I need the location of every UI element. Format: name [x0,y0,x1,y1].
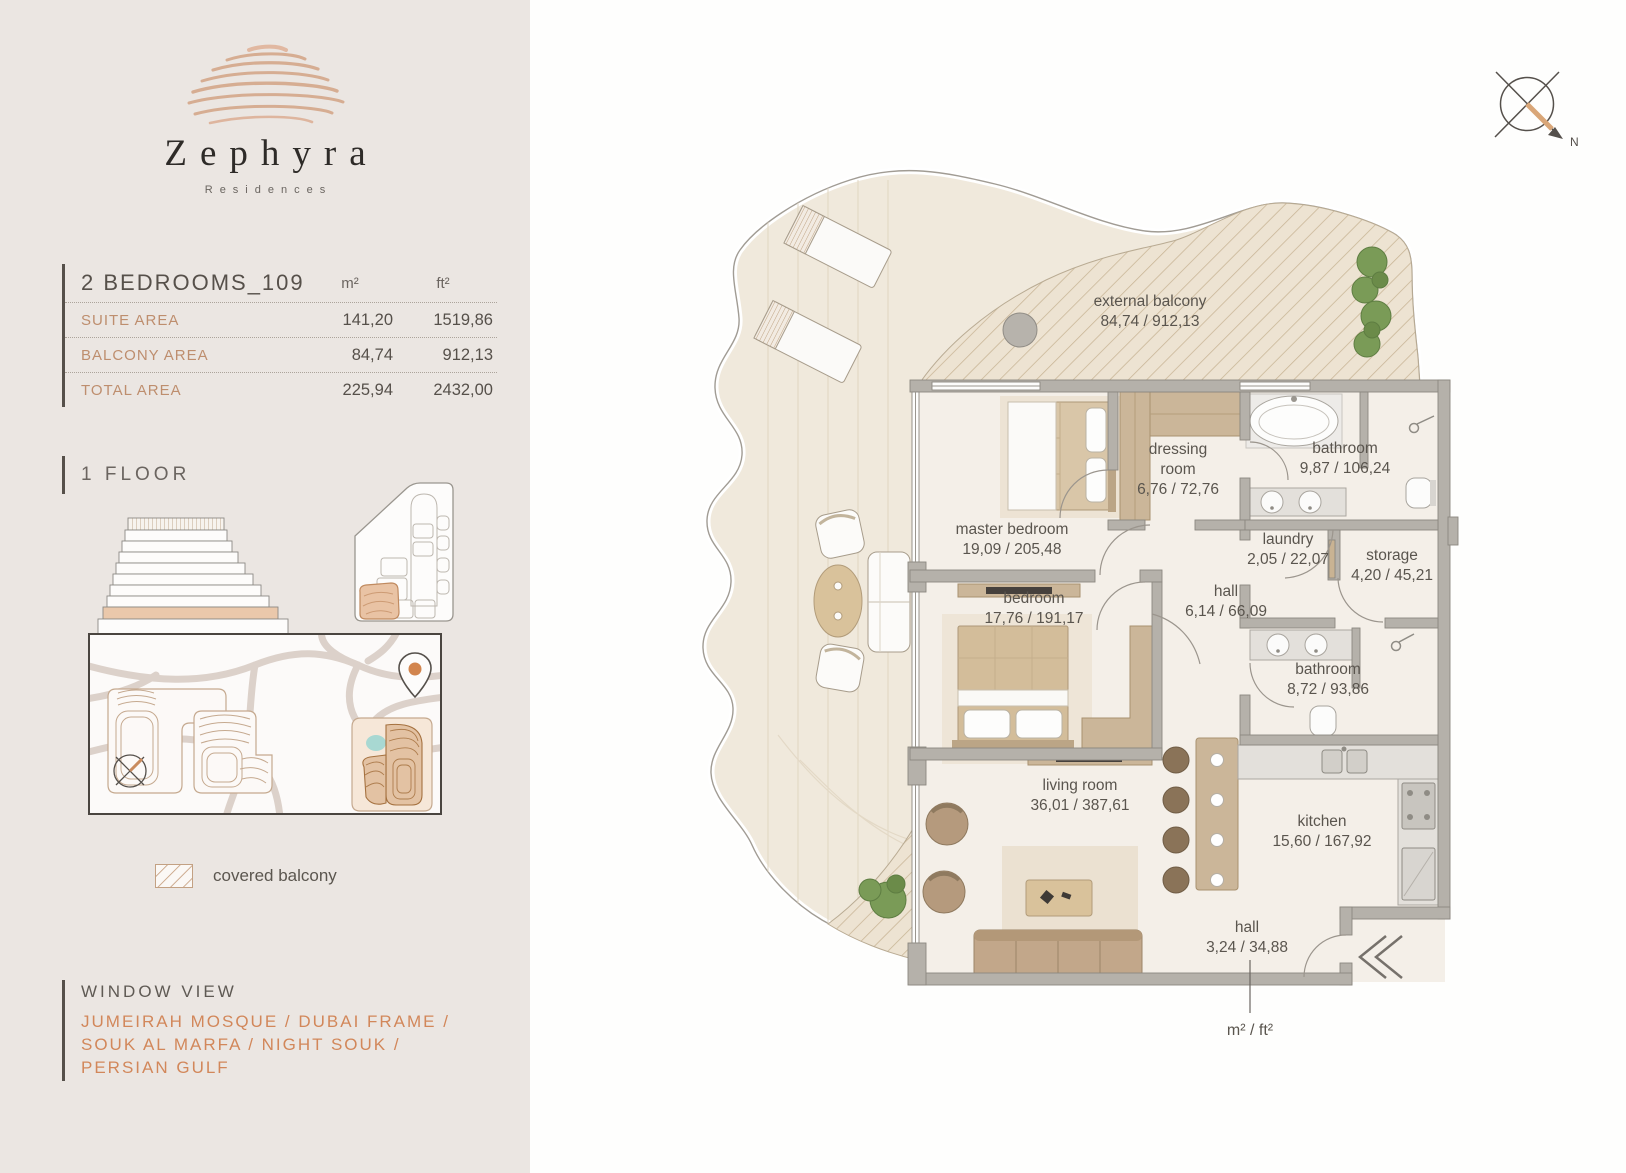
floorplan-brochure-page: Zephyra Residences 2 BEDROOMS_109 m² ft²… [0,0,1626,1173]
unit-title: 2 BEDROOMS_109 [81,270,307,296]
map-building-center [194,711,272,793]
room-label-external-balcony: external balcony84,74 / 912,13 [1094,292,1207,332]
floor-plan-drawing: N [640,40,1626,1120]
legend-label: covered balcony [213,866,337,886]
room-label-laundry: laundry2,05 / 22,07 [1247,530,1329,570]
north-label: N [1570,135,1579,149]
sidebar: Zephyra Residences 2 BEDROOMS_109 m² ft²… [0,0,530,1173]
window-view-line: PERSIAN GULF [81,1056,450,1079]
window-view-line: JUMEIRAH MOSQUE / DUBAI FRAME / [81,1010,450,1033]
window-view-title: WINDOW VIEW [81,982,450,1002]
brand-subtitle: Residences [0,184,530,196]
table-row-total-area: TOTAL AREA 225,94 2432,00 [65,372,497,407]
north-compass-icon: N [1495,72,1579,149]
table-row-balcony-area: BALCONY AREA 84,74 912,13 [65,337,497,372]
room-label-bedroom: bedroom17,76 / 191,17 [984,589,1083,629]
area-table: 2 BEDROOMS_109 m² ft² SUITE AREA 141,20 … [62,264,497,407]
room-label-hall-1: hall6,14 / 66,09 [1185,582,1267,622]
brand-name: Zephyra [0,132,530,175]
master-bed [1000,396,1120,518]
balcony-table [1003,313,1037,347]
room-label-dressing-room: dressing room6,76 / 72,76 [1132,440,1224,500]
room-label-bathroom-1: bathroom9,87 / 106,24 [1300,439,1391,479]
floor-label: 1 FLOOR [62,456,190,494]
highlighted-floor [103,607,278,619]
col-header-m2: m² [307,275,393,292]
window-view-block: WINDOW VIEW JUMEIRAH MOSQUE / DUBAI FRAM… [62,980,450,1081]
room-label-storage: storage4,20 / 45,21 [1351,546,1433,586]
key-plan [333,466,461,628]
room-label-hall-2: hall3,24 / 34,88 [1206,918,1288,958]
covered-balcony-legend: covered balcony [155,864,337,888]
room-label-bathroom-2: bathroom8,72 / 93,86 [1287,660,1369,700]
bedroom-bed [942,614,1092,764]
room-label-kitchen: kitchen15,60 / 167,92 [1272,812,1371,852]
room-label-living-room: living room36,01 / 387,61 [1030,776,1129,816]
logo-swirl-icon [165,40,365,128]
room-label-master-bedroom: master bedroom19,09 / 205,48 [956,520,1069,560]
building-elevation [92,498,302,638]
brand-logo: Zephyra Residences [0,40,530,196]
table-row-suite-area: SUITE AREA 141,20 1519,86 [65,302,497,337]
col-header-ft2: ft² [393,275,493,292]
window-view-line: SOUK AL MARFA / NIGHT SOUK / [81,1033,450,1056]
location-map [88,633,442,815]
hatch-swatch-icon [155,864,193,888]
units-note: m² / ft² [1227,1022,1273,1040]
